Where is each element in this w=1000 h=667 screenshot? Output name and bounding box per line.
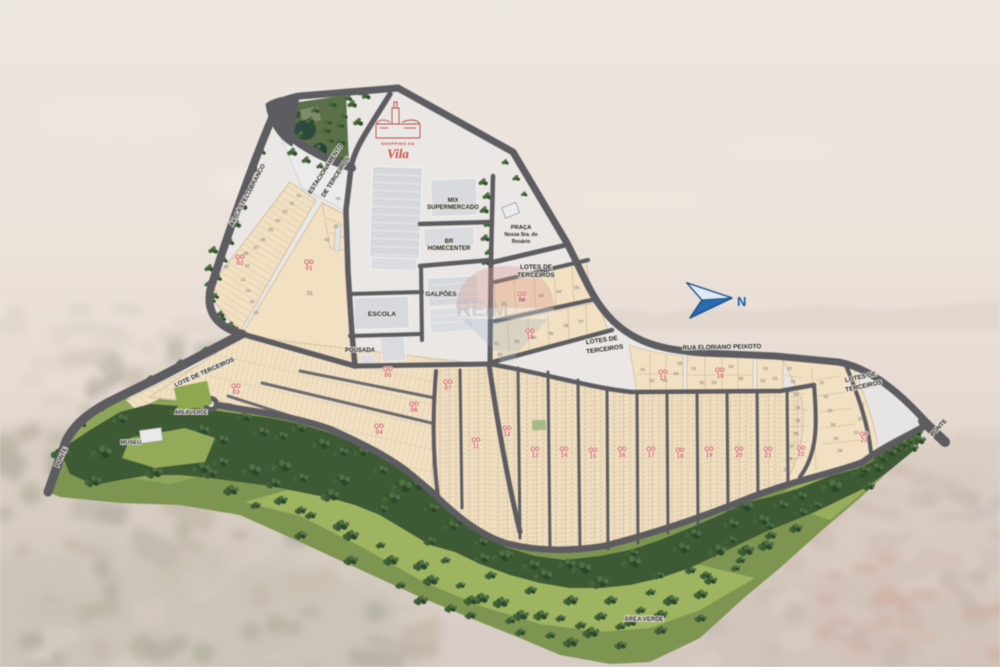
svg-text:02: 02 [236,260,244,267]
svg-text:07: 07 [790,444,795,449]
svg-text:20: 20 [736,452,743,459]
svg-text:11: 11 [858,416,863,421]
svg-text:19: 19 [716,373,724,380]
svg-text:08: 08 [788,456,793,461]
svg-text:05: 05 [384,372,392,379]
svg-text:04: 04 [336,196,341,201]
svg-text:06: 06 [564,323,569,328]
svg-text:02: 02 [700,380,705,385]
svg-text:03: 03 [712,380,717,385]
svg-text:01: 01 [297,193,302,198]
svg-text:02: 02 [325,237,330,242]
svg-text:04: 04 [674,371,679,376]
svg-text:03: 03 [515,339,520,344]
svg-text:08: 08 [244,251,249,256]
svg-text:02: 02 [824,394,829,399]
svg-text:01: 01 [307,291,313,297]
svg-text:05: 05 [796,418,801,423]
svg-text:ESCOLA: ESCOLA [368,311,396,318]
svg-text:02: 02 [791,379,796,384]
svg-text:01: 01 [502,301,507,306]
svg-text:18: 18 [254,310,259,315]
svg-text:RE/M: RE/M [456,298,509,321]
svg-text:11: 11 [473,443,480,450]
svg-text:21: 21 [765,452,772,459]
svg-text:PRAÇA: PRAÇA [511,225,532,231]
svg-text:MUSEU: MUSEU [121,440,142,446]
svg-text:07: 07 [444,385,452,392]
svg-text:TERCEIROS: TERCEIROS [517,272,555,279]
svg-text:12: 12 [241,277,246,282]
svg-text:02: 02 [520,297,525,302]
svg-text:02: 02 [761,378,766,383]
svg-text:MIX: MIX [448,198,459,204]
svg-text:03: 03 [794,392,799,397]
svg-text:06: 06 [410,407,418,414]
svg-text:19: 19 [706,452,713,459]
svg-text:06: 06 [261,237,266,242]
svg-text:02: 02 [650,378,655,383]
svg-text:03: 03 [773,376,778,381]
svg-text:01: 01 [641,367,646,372]
svg-text:GALPÕES: GALPÕES [425,289,457,298]
svg-text:01: 01 [692,366,697,371]
svg-text:04: 04 [557,289,562,294]
svg-text:09: 09 [224,264,229,269]
svg-text:05: 05 [269,227,274,232]
svg-text:05: 05 [575,285,580,290]
svg-text:12: 12 [860,402,865,407]
svg-text:07: 07 [254,245,259,250]
svg-text:ÁREA VERDE: ÁREA VERDE [624,616,663,623]
svg-text:04: 04 [276,218,281,223]
svg-text:Vila: Vila [387,146,409,161]
svg-text:06: 06 [838,448,843,453]
svg-text:05: 05 [549,331,554,336]
svg-text:03: 03 [283,209,288,214]
svg-text:14: 14 [561,452,568,459]
svg-text:16: 16 [250,299,255,304]
svg-text:07: 07 [579,319,584,324]
svg-text:POUSADA: POUSADA [345,348,376,354]
svg-text:15: 15 [590,453,597,460]
svg-text:SUPERMERCADO: SUPERMERCADO [427,205,479,211]
svg-text:03: 03 [539,293,544,298]
svg-text:01: 01 [820,380,825,385]
svg-text:04: 04 [532,335,537,340]
svg-text:05: 05 [739,376,744,381]
svg-text:LOTES DE: LOTES DE [520,264,553,271]
svg-text:03: 03 [828,408,833,413]
svg-text:04: 04 [729,364,734,369]
svg-text:04: 04 [375,429,383,436]
svg-text:17: 17 [648,452,655,459]
svg-text:02: 02 [290,201,295,206]
svg-text:14: 14 [246,288,251,293]
svg-text:05: 05 [678,361,683,366]
svg-text:01: 01 [305,265,313,272]
svg-text:13: 13 [532,452,539,459]
svg-text:12: 12 [504,431,511,438]
svg-text:16: 16 [619,452,626,459]
svg-text:01: 01 [788,366,793,371]
svg-text:Nossa Sra. do: Nossa Sra. do [504,232,537,238]
svg-text:10: 10 [245,263,250,268]
svg-text:03: 03 [232,389,240,396]
svg-text:06: 06 [794,431,799,436]
svg-text:04: 04 [831,422,836,427]
svg-text:HOMECENTER: HOMECENTER [428,246,471,252]
svg-text:Rosário: Rosário [512,239,531,245]
svg-text:05: 05 [834,436,839,441]
svg-text:10: 10 [854,430,859,435]
svg-text:01: 01 [764,366,769,371]
svg-text:N: N [737,294,746,309]
svg-text:03: 03 [334,224,339,229]
svg-text:22: 22 [798,451,805,458]
svg-text:04: 04 [796,405,801,410]
svg-text:BR: BR [445,239,454,245]
svg-text:18: 18 [677,453,684,460]
svg-text:RUA FLORIANO PEIXOTO: RUA FLORIANO PEIXOTO [683,343,762,351]
svg-text:09: 09 [784,467,789,472]
svg-text:03: 03 [663,378,668,383]
svg-text:23: 23 [861,437,868,444]
svg-text:ÁREA VERDE: ÁREA VERDE [175,409,208,416]
svg-text:02: 02 [498,352,503,357]
svg-text:01: 01 [495,341,500,346]
